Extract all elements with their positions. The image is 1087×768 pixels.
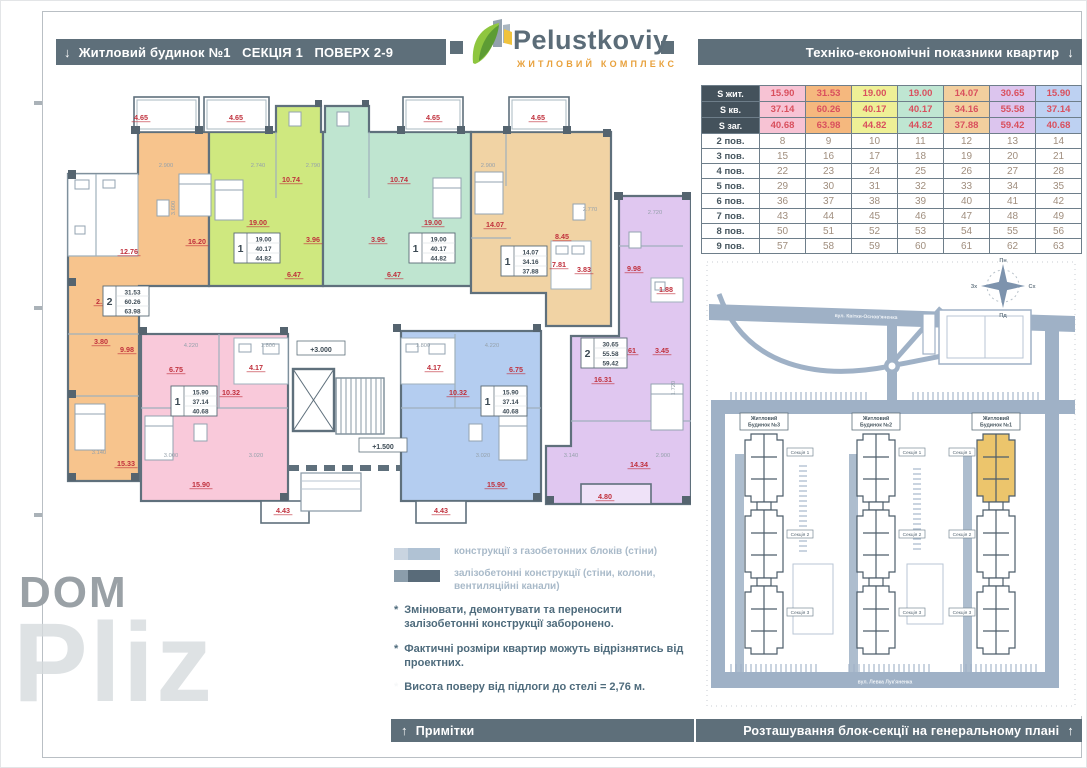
logo: Pelustkoviy ЖИТЛОВИЙ КОМПЛЕКС [469, 13, 684, 81]
dimension-label: 2.720 [648, 210, 663, 216]
apartment-number-cell: 61 [944, 239, 990, 254]
svg-text:Секція 1: Секція 1 [953, 450, 972, 456]
room-area-label: 15.33 [117, 459, 135, 468]
area-value-cell: 40.17 [852, 102, 898, 118]
svg-text:Житловий: Житловий [862, 415, 889, 422]
section-chip: Секція 1 [899, 448, 925, 456]
apartment-number-cell: 16 [806, 149, 852, 164]
building-1 [977, 434, 1015, 654]
apartment-number-cell: 49 [1036, 209, 1082, 224]
apartment-number-cell: 54 [944, 224, 990, 239]
svg-text:30.65: 30.65 [603, 342, 619, 349]
apartment-info-box: 230.6555.5859.42 [581, 338, 627, 368]
apartment-number-cell: 55 [990, 224, 1036, 239]
dimension-label: 2.900 [159, 163, 174, 169]
apartment-number-cell: 36 [760, 194, 806, 209]
room-area-label: 9.98 [627, 264, 641, 273]
area-value-cell: 55.58 [990, 102, 1036, 118]
apartment-number-cell: 34 [990, 179, 1036, 194]
dimension-label: 2.900 [656, 453, 671, 459]
room-area-label: 4.65 [229, 113, 243, 122]
section-chip: Секція 3 [899, 608, 925, 616]
apartment-number-cell: 14 [1036, 134, 1082, 149]
note-3: *Висота поверу від підлоги до стелі = 2,… [394, 680, 694, 694]
apartment-number-cell: 11 [898, 134, 944, 149]
svg-text:Секція 3: Секція 3 [791, 610, 810, 616]
dimension-label: 2.900 [481, 163, 496, 169]
svg-text:Секція 1: Секція 1 [903, 450, 922, 456]
svg-text:Будинок №2: Будинок №2 [860, 423, 892, 429]
dimension-label: 3.600 [171, 201, 177, 216]
area-value-cell: 59.42 [990, 118, 1036, 134]
apartment-number-cell: 10 [852, 134, 898, 149]
concrete-swatch [394, 570, 440, 582]
svg-text:37.14: 37.14 [193, 399, 209, 406]
room-area-label: 3.96 [306, 235, 320, 244]
svg-text:15.90: 15.90 [193, 390, 209, 397]
room-area-label: 16.31 [594, 375, 612, 384]
apartment-number-cell: 38 [852, 194, 898, 209]
apartment-number-cell: 31 [852, 179, 898, 194]
apartment-number-cell: 22 [760, 164, 806, 179]
section-chip: Секція 1 [787, 448, 813, 456]
street-label-bottom: вул. Левка Лук'яненка [858, 680, 913, 686]
svg-text:1: 1 [238, 243, 244, 255]
compass-east: Сх [1028, 284, 1036, 290]
svg-text:1: 1 [485, 396, 491, 408]
room-area-label: 14.34 [630, 460, 648, 469]
svg-text:63.98: 63.98 [125, 309, 141, 316]
svg-text:Секція 2: Секція 2 [791, 532, 810, 538]
level-label: +3.000 [310, 347, 332, 354]
svg-text:14.07: 14.07 [523, 250, 539, 257]
svg-text:19.00: 19.00 [256, 237, 272, 244]
area-value-cell: 40.68 [1036, 118, 1082, 134]
dimension-label: 2.790 [306, 163, 321, 169]
room-area-label: 12.76 [120, 247, 138, 256]
concrete-label: залізобетонні конструкції (стіни, колони… [454, 568, 694, 593]
apartment-number-cell: 21 [1036, 149, 1082, 164]
apartment-number-cell: 50 [760, 224, 806, 239]
apartment-number-cell: 46 [898, 209, 944, 224]
svg-text:44.82: 44.82 [256, 256, 272, 263]
dimension-label: 2.740 [251, 163, 266, 169]
dimension-label: 3.140 [92, 450, 107, 456]
logo-subtitle: ЖИТЛОВИЙ КОМПЛЕКС [517, 59, 677, 69]
room-area-label: 8.45 [555, 232, 569, 241]
compass-north: Пн [999, 258, 1006, 264]
apartment-number-cell: 63 [1036, 239, 1082, 254]
yard-area [793, 564, 833, 634]
room-area-label: 3.45 [655, 346, 669, 355]
sheet-tick [34, 306, 42, 310]
building-1-section-1-highlighted [977, 434, 1015, 502]
header-left-bar: ↓Житловий будинок №1 СЕКЦІЯ 1 ПОВЕРХ 2-9 [56, 39, 446, 65]
svg-text:Будинок №3: Будинок №3 [748, 423, 780, 429]
note-2: *Фактичні розміри квартир можуть відрізн… [394, 642, 694, 671]
room-area-label: 3.80 [94, 337, 108, 346]
svg-text:Житловий: Житловий [982, 415, 1009, 422]
apartment-number-cell: 25 [898, 164, 944, 179]
floor-row-label: 3 пов. [702, 149, 760, 164]
apartment-number-cell: 17 [852, 149, 898, 164]
gasblock-label: конструкції з газобетонних блоків (стіни… [454, 546, 657, 559]
sports-court [923, 310, 1031, 364]
apartment-number-cell: 28 [1036, 164, 1082, 179]
room-area-label: 16.20 [188, 237, 206, 246]
room-area-label: 6.75 [169, 365, 183, 374]
room-area-label: 6.47 [387, 270, 401, 279]
apartment-number-cell: 51 [806, 224, 852, 239]
apartment-number-cell: 18 [898, 149, 944, 164]
svg-text:40.17: 40.17 [431, 246, 447, 253]
area-value-cell: 37.14 [1036, 102, 1082, 118]
area-value-cell: 19.00 [898, 86, 944, 102]
apartment-number-cell: 33 [944, 179, 990, 194]
room-area-label: 4.17 [249, 363, 263, 372]
svg-text:2: 2 [107, 296, 113, 308]
dimension-label: 1.800 [261, 343, 276, 349]
room-area-label: 4.80 [598, 492, 612, 501]
room-area-label: 3.83 [577, 265, 591, 274]
svg-text:Секція 2: Секція 2 [903, 532, 922, 538]
apartment-number-cell: 62 [990, 239, 1036, 254]
svg-text:44.82: 44.82 [431, 256, 447, 263]
area-row-label: S заг. [702, 118, 760, 134]
room-area-label: 3.96 [371, 235, 385, 244]
area-value-cell: 44.82 [898, 118, 944, 134]
svg-text:59.42: 59.42 [603, 361, 619, 368]
svg-text:40.68: 40.68 [193, 409, 209, 416]
area-value-cell: 63.98 [806, 118, 852, 134]
svg-text:60.26: 60.26 [125, 299, 141, 306]
apartment-number-cell: 43 [760, 209, 806, 224]
room-area-label: 7.81 [552, 260, 566, 269]
apartments-table: S жит.15.9031.5319.0019.0014.0730.6515.9… [701, 85, 1082, 254]
area-value-cell: 60.26 [806, 102, 852, 118]
floor-row-label: 5 пов. [702, 179, 760, 194]
room-area-label: 14.07 [486, 220, 504, 229]
section-chip: Секція 2 [949, 530, 975, 538]
apartment-number-cell: 48 [990, 209, 1036, 224]
section-chip: Секція 1 [949, 448, 975, 456]
apartment-number-cell: 39 [898, 194, 944, 209]
room-area-label: 6.47 [287, 270, 301, 279]
level-label: +1.500 [372, 444, 394, 451]
apartment-number-cell: 35 [1036, 179, 1082, 194]
dimension-label: 3.140 [564, 453, 579, 459]
dimension-label: 4.220 [184, 343, 199, 349]
apartment-number-cell: 53 [898, 224, 944, 239]
apartment-number-cell: 58 [806, 239, 852, 254]
room-area-label: 19.00 [424, 218, 442, 227]
apartment-number-cell: 23 [806, 164, 852, 179]
svg-text:34.16: 34.16 [523, 259, 539, 266]
area-value-cell: 31.53 [806, 86, 852, 102]
floor-row-label: 7 пов. [702, 209, 760, 224]
entrance-porch [301, 473, 361, 511]
svg-text:Секція 2: Секція 2 [953, 532, 972, 538]
apartment-number-cell: 57 [760, 239, 806, 254]
legend-row: залізобетонні конструкції (стіни, колони… [394, 568, 694, 593]
svg-text:1: 1 [413, 243, 419, 255]
apartment-number-cell: 30 [806, 179, 852, 194]
dimension-label: 3.020 [249, 453, 264, 459]
drawing-sheet: ↓Житловий будинок №1 СЕКЦІЯ 1 ПОВЕРХ 2-9… [0, 0, 1087, 768]
floor-row-label: 8 пов. [702, 224, 760, 239]
apartment-number-cell: 12 [944, 134, 990, 149]
svg-text:19.00: 19.00 [431, 237, 447, 244]
room-area-label: 4.43 [276, 506, 290, 515]
svg-text:31.53: 31.53 [125, 290, 141, 297]
apartment-number-cell: 9 [806, 134, 852, 149]
svg-text:37.14: 37.14 [503, 399, 519, 406]
apartment-number-cell: 60 [898, 239, 944, 254]
floor-row-label: 2 пов. [702, 134, 760, 149]
building-2 [857, 434, 895, 654]
area-value-cell: 15.90 [760, 86, 806, 102]
room-area-label: 4.43 [434, 506, 448, 515]
logo-leaf-icon [469, 17, 513, 69]
svg-text:37.88: 37.88 [523, 269, 539, 276]
apartment-number-cell: 45 [852, 209, 898, 224]
room-area-label: 15.90 [192, 480, 210, 489]
apartment-info-box: 114.0734.1637.88 [501, 246, 547, 276]
apartment-number-cell: 56 [1036, 224, 1082, 239]
area-value-cell: 40.68 [760, 118, 806, 134]
room-area-label: 4.65 [531, 113, 545, 122]
apartment-number-cell: 32 [898, 179, 944, 194]
room-area-label: 10.32 [222, 388, 240, 397]
room-area-label: 1.88 [659, 285, 673, 294]
apartment-number-cell: 26 [944, 164, 990, 179]
asterisk: * [394, 603, 398, 632]
dimension-label: 3.020 [476, 453, 491, 459]
floor-row-label: 6 пов. [702, 194, 760, 209]
area-value-cell: 19.00 [852, 86, 898, 102]
up-arrow-icon: ↑ [1067, 723, 1074, 738]
left-title: Житловий будинок №1 СЕКЦІЯ 1 ПОВЕРХ 2-9 [79, 45, 394, 60]
room-area-label: 10.74 [390, 175, 408, 184]
dimension-label: 1.720 [671, 381, 677, 396]
site-plan: Пн Сх Пд Зх вул. Квітки-Основ'яненка вул… [701, 254, 1082, 716]
svg-text:Секція 3: Секція 3 [903, 610, 922, 616]
staircase [336, 378, 384, 434]
area-value-cell: 37.88 [944, 118, 990, 134]
sheet-tick [34, 513, 42, 517]
section-chip: Секція 3 [949, 608, 975, 616]
area-value-cell: 40.17 [898, 102, 944, 118]
area-value-cell: 44.82 [852, 118, 898, 134]
room-area-label: 10.32 [449, 388, 467, 397]
apartment-number-cell: 59 [852, 239, 898, 254]
legend: конструкції з газобетонних блоків (стіни… [394, 546, 694, 694]
svg-text:Житловий: Житловий [750, 415, 777, 422]
down-arrow-icon: ↓ [1067, 45, 1074, 60]
apartment-number-cell: 42 [1036, 194, 1082, 209]
room-area-label: 4.65 [134, 113, 148, 122]
room-area-label: 4.17 [427, 363, 441, 372]
footer-siteplan-bar: Розташування блок-секції на генеральному… [696, 719, 1082, 742]
asterisk: * [394, 680, 398, 694]
apartment-number-cell: 37 [806, 194, 852, 209]
svg-text:Секція 3: Секція 3 [953, 610, 972, 616]
svg-text:55.58: 55.58 [603, 351, 619, 358]
area-value-cell: 37.14 [760, 102, 806, 118]
apartment-info-box: 119.0040.1744.82 [234, 233, 280, 263]
apartment-number-cell: 24 [852, 164, 898, 179]
apartment-number-cell: 47 [944, 209, 990, 224]
floor-plan: 4.654.654.654.6512.7616.202.193.809.9815… [51, 86, 691, 531]
svg-text:40.68: 40.68 [503, 409, 519, 416]
svg-text:Секція 1: Секція 1 [791, 450, 810, 456]
room-area-label: 19.00 [249, 218, 267, 227]
area-value-cell: 34.16 [944, 102, 990, 118]
apartment-number-cell: 15 [760, 149, 806, 164]
dimension-label: 2.770 [583, 207, 598, 213]
area-row-label: S жит. [702, 86, 760, 102]
svg-text:40.17: 40.17 [256, 246, 272, 253]
room-area-label: 6.75 [509, 365, 523, 374]
header-right-bar: Техніко-економічні показники квартир↓ [698, 39, 1082, 65]
svg-text:1: 1 [505, 256, 511, 268]
up-arrow-icon: ↑ [401, 723, 408, 738]
room-area-label: 9.98 [120, 345, 134, 354]
apartment-number-cell: 52 [852, 224, 898, 239]
building-3 [745, 434, 783, 654]
asterisk: * [394, 642, 398, 671]
apartment-number-cell: 40 [944, 194, 990, 209]
apartment-info-box: 119.0040.1744.82 [409, 233, 455, 263]
apartment-info-box: 231.5360.2663.98 [103, 286, 149, 316]
svg-text:2: 2 [585, 348, 591, 360]
floor-row-label: 4 пов. [702, 164, 760, 179]
note-1: *Змінювати, демонтувати та переносити за… [394, 603, 694, 632]
floor-row-label: 9 пов. [702, 239, 760, 254]
area-value-cell: 15.90 [1036, 86, 1082, 102]
room-area-label: 10.74 [282, 175, 300, 184]
svg-text:1: 1 [175, 396, 181, 408]
header-end-square [450, 41, 463, 54]
section-chip: Секція 3 [787, 608, 813, 616]
room-area-label: 15.90 [487, 480, 505, 489]
area-value-cell: 14.07 [944, 86, 990, 102]
apartment-number-cell: 20 [990, 149, 1036, 164]
right-title: Техніко-економічні показники квартир [806, 45, 1060, 60]
apartment-number-cell: 19 [944, 149, 990, 164]
apartment-number-cell: 27 [990, 164, 1036, 179]
dimension-label: 1.800 [416, 343, 431, 349]
down-arrow-icon: ↓ [64, 45, 71, 60]
compass-west: Зх [971, 284, 978, 290]
dimension-label: 4.220 [485, 343, 500, 349]
area-value-cell: 30.65 [990, 86, 1036, 102]
svg-text:15.90: 15.90 [503, 390, 519, 397]
room-area-label: 4.65 [426, 113, 440, 122]
building-labels: Житловий Будинок №3 Житловий Будинок №2 … [740, 413, 1020, 430]
apartment-info-box: 115.9037.1440.68 [481, 386, 527, 416]
logo-name: Pelustkoviy [513, 25, 669, 56]
svg-text:Будинок №1: Будинок №1 [980, 423, 1012, 429]
apartment-number-cell: 44 [806, 209, 852, 224]
apartment-number-cell: 13 [990, 134, 1036, 149]
apartment-number-cell: 29 [760, 179, 806, 194]
apartment-number-cell: 41 [990, 194, 1036, 209]
area-row-label: S кв. [702, 102, 760, 118]
legend-row: конструкції з газобетонних блоків (стіни… [394, 546, 694, 560]
apartment-info-box: 115.9037.1440.68 [171, 386, 217, 416]
section-chip: Секція 2 [787, 530, 813, 538]
section-chip: Секція 2 [899, 530, 925, 538]
apartment-number-cell: 8 [760, 134, 806, 149]
compass-south: Пд [999, 313, 1007, 319]
sheet-tick [34, 101, 42, 105]
footer-notes-bar: ↑Примітки [391, 719, 694, 742]
dimension-label: 3.000 [164, 453, 179, 459]
gasblock-swatch [394, 548, 440, 560]
